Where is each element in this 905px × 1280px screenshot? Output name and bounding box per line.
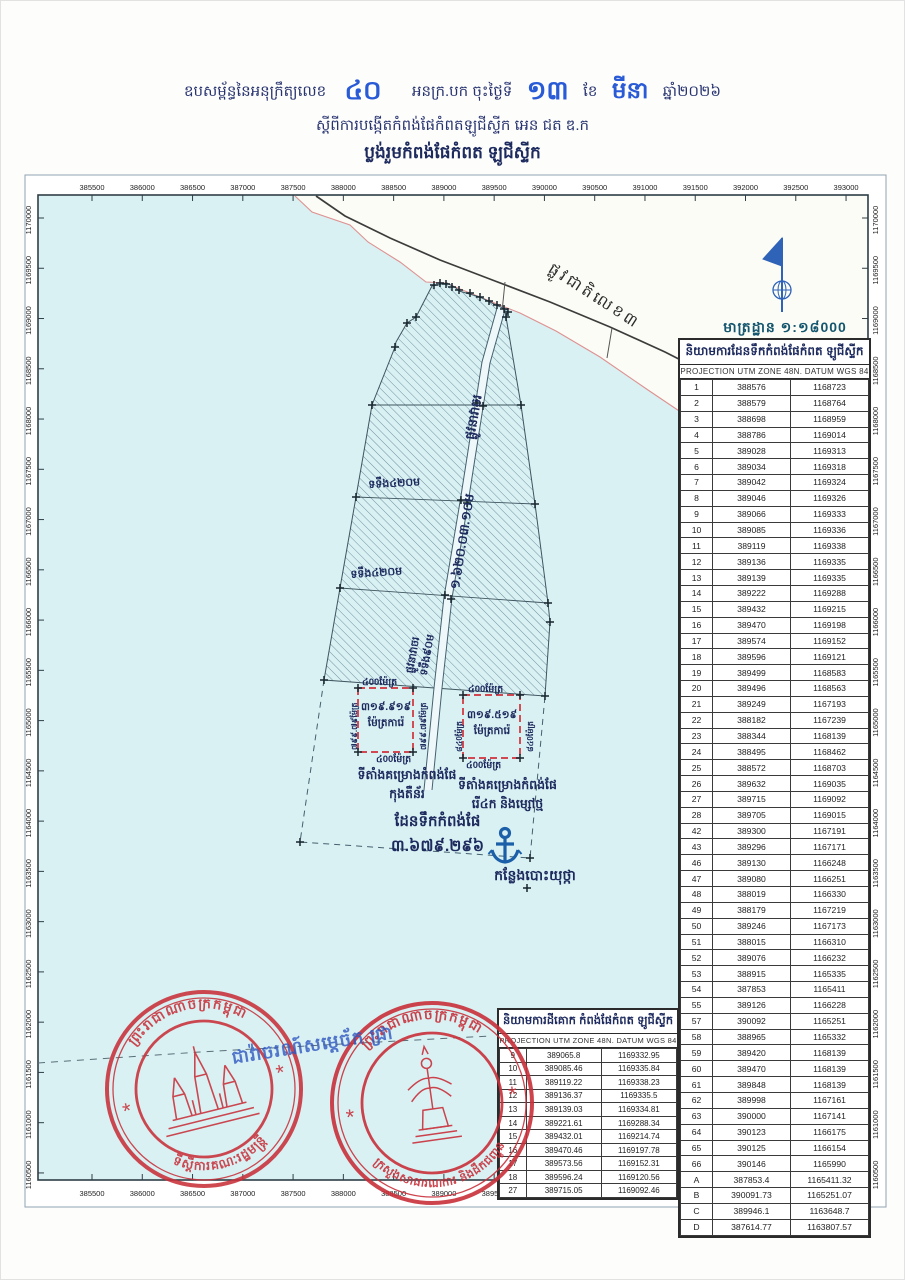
table-cell: 2: [681, 395, 713, 411]
table-cell: D: [681, 1219, 713, 1235]
axis-tick-label: 1162500: [24, 960, 33, 989]
table-cell: 389848: [712, 1077, 790, 1093]
table-row: 10389085.461169335.84: [500, 1062, 677, 1076]
axis-tick-label: 1168500: [24, 356, 33, 385]
table-cell: 388576: [712, 380, 790, 396]
table-row: 523890761166232: [681, 950, 869, 966]
table-cell: 62: [681, 1092, 713, 1108]
table-cell: 63: [681, 1108, 713, 1124]
table-row: 123891361169335: [681, 554, 869, 570]
table-row: A387853.41165411.32: [681, 1172, 869, 1188]
parcel-right-top-dim: ៤00ម៉ែត្រ: [468, 683, 503, 697]
water-area-value: ៣.៦៧៩.២៩៦: [355, 834, 520, 860]
axis-tick-label: 1164000: [24, 809, 33, 838]
table-row: 13389139.031169334.81: [500, 1103, 677, 1117]
table-cell: 389632: [712, 776, 790, 792]
axis-tick-label: 1163000: [871, 909, 880, 938]
table-cell: 1168764: [790, 395, 868, 411]
table-cell: 1165332: [790, 1029, 868, 1045]
axis-tick-label: 387000: [230, 183, 255, 192]
table-row: 27389715.051169092.46: [500, 1184, 677, 1198]
table-row: 593894201168139: [681, 1045, 869, 1061]
table-row: 33886981168959: [681, 411, 869, 427]
parcel-right-caption-1: ទីតាំងគម្រោងកំពង់ផែ: [420, 776, 595, 795]
axis-tick-label: 388000: [331, 1189, 356, 1198]
table-cell: 1169152: [790, 633, 868, 649]
table-cell: 1: [681, 380, 713, 396]
axis-tick-label: 387500: [281, 183, 306, 192]
table-cell: 1169015: [790, 807, 868, 823]
table-cell: 5: [681, 443, 713, 459]
axis-tick-label: 391500: [683, 183, 708, 192]
table-cell: 1167141: [790, 1108, 868, 1124]
axis-tick-label: 1166000: [871, 608, 880, 637]
axis-tick-label: 1161000: [871, 1110, 880, 1139]
table-cell: 52: [681, 950, 713, 966]
table-cell: 389432: [712, 601, 790, 617]
axis-tick-label: 1164500: [871, 759, 880, 788]
table-cell: 1166154: [790, 1140, 868, 1156]
table-cell: 1169152.31: [601, 1157, 676, 1171]
table-cell: 389085: [712, 522, 790, 538]
table-cell: 389080: [712, 871, 790, 887]
table-cell: 390125: [712, 1140, 790, 1156]
table-row: 533889151165335: [681, 966, 869, 982]
table-cell: 1169014: [790, 427, 868, 443]
table-cell: 1169332.95: [601, 1049, 676, 1063]
table-row: 433892961167171: [681, 839, 869, 855]
axis-tick-label: 1166000: [24, 608, 33, 637]
table-row: 513880151166310: [681, 934, 869, 950]
table-row: 493881791167219: [681, 902, 869, 918]
table-cell: 389028: [712, 443, 790, 459]
table-cell: 1168139: [790, 1077, 868, 1093]
axis-tick-label: 388500: [381, 183, 406, 192]
table-cell: 27: [681, 791, 713, 807]
table-cell: 54: [681, 982, 713, 998]
parcel-left-area: ៣១៩.៩១៩: [360, 700, 412, 716]
axis-tick-label: 387500: [281, 1189, 306, 1198]
table-cell: 58: [681, 1029, 713, 1045]
table-cell: 14: [681, 585, 713, 601]
table-cell: 20: [681, 681, 713, 697]
table-row: 543878531165411: [681, 982, 869, 998]
table-cell: 390000: [712, 1108, 790, 1124]
table-cell: 1169214.74: [601, 1130, 676, 1144]
axis-tick-label: 1166500: [871, 557, 880, 586]
table-cell: 66: [681, 1156, 713, 1172]
table-cell: 50: [681, 918, 713, 934]
table-cell: 389139.03: [526, 1103, 601, 1117]
table-cell: 1168959: [790, 411, 868, 427]
table-cell: 388182: [712, 712, 790, 728]
table-row: 633900001167141: [681, 1108, 869, 1124]
parcel-left-bottom-dim: ៤00ម៉ែត្រ: [376, 753, 411, 767]
table-row: 83890461169326: [681, 490, 869, 506]
table-cell: 389573.56: [526, 1157, 601, 1171]
table-row: 243884951168462: [681, 744, 869, 760]
axis-tick-label: 1161500: [871, 1060, 880, 1089]
table-cell: 389136: [712, 554, 790, 570]
parcel-right-side-dim-2: ៨៤0ម៉ែត្រ: [525, 721, 537, 752]
table-cell: 24: [681, 744, 713, 760]
axis-tick-label: 1165000: [871, 708, 880, 737]
table-row: 14389221.611169288.34: [500, 1116, 677, 1130]
table-cell: 389998: [712, 1092, 790, 1108]
table-cell: 42: [681, 823, 713, 839]
table-cell: 1166330: [790, 887, 868, 903]
parcel-right-unit: ម៉ែត្រការ៉េ: [465, 724, 519, 740]
table-cell: 389119: [712, 538, 790, 554]
table-cell: 390123: [712, 1124, 790, 1140]
table-cell: 1166310: [790, 934, 868, 950]
table-row: 503892461167173: [681, 918, 869, 934]
table-cell: 1169333: [790, 506, 868, 522]
axis-tick-label: 1167000: [871, 507, 880, 536]
table-row: 17389573.561169152.31: [500, 1157, 677, 1171]
table-cell: 51: [681, 934, 713, 950]
table-cell: 388698: [712, 411, 790, 427]
table-cell: 22: [681, 712, 713, 728]
axis-tick-label: 390000: [532, 183, 557, 192]
table-row: 253885721168703: [681, 760, 869, 776]
table-row: 473890801166251: [681, 871, 869, 887]
table-cell: 388965: [712, 1029, 790, 1045]
table-cell: 1169198: [790, 617, 868, 633]
axis-tick-label: 1162000: [871, 1010, 880, 1039]
table-row: 193894991168583: [681, 665, 869, 681]
table-row: 643901231166175: [681, 1124, 869, 1140]
axis-tick-label: 1160500: [871, 1161, 880, 1190]
table-cell: 1167173: [790, 918, 868, 934]
axis-tick-label: 1170000: [871, 206, 880, 235]
axis-tick-label: 1162000: [24, 1010, 33, 1039]
axis-tick-label: 1167500: [871, 457, 880, 486]
scale-label: មាត្រដ្ឋាន ១:១៨000: [695, 318, 875, 339]
axis-tick-label: 1168000: [871, 407, 880, 436]
table-cell: 1165251.07: [790, 1188, 868, 1204]
axis-tick-label: 388000: [331, 183, 356, 192]
table-row: 103890851169336: [681, 522, 869, 538]
water-table-grid: 1388576116872323885791168764338869811689…: [680, 379, 869, 1236]
table-cell: 4: [681, 427, 713, 443]
table-cell: 12: [681, 554, 713, 570]
axis-tick-label: 389500: [482, 183, 507, 192]
table-cell: 15: [681, 601, 713, 617]
table-row: 12389136.371169335.5: [500, 1089, 677, 1103]
table-cell: 1169338.23: [601, 1076, 676, 1090]
table-row: 263896321169035: [681, 776, 869, 792]
table-cell: 1169288: [790, 585, 868, 601]
table-cell: 388179: [712, 902, 790, 918]
table-cell: 388579: [712, 395, 790, 411]
parcel-left-side-dim-2: ៧៩៩.៧៩ម៉ែត្រ: [418, 703, 430, 750]
axis-tick-label: 389000: [431, 1189, 456, 1198]
table-row: C389946.11163648.7: [681, 1203, 869, 1219]
table-row: 133891391169335: [681, 570, 869, 586]
table-cell: 9: [681, 506, 713, 522]
table-cell: 389034: [712, 459, 790, 475]
water-area-label: ដែនទឹកកំពង់ផែ: [355, 810, 520, 834]
table-cell: 1169324: [790, 475, 868, 491]
table-cell: 1165411: [790, 982, 868, 998]
table-cell: 389946.1: [712, 1203, 790, 1219]
axis-tick-label: 387000: [230, 1189, 255, 1198]
table-row: 63890341169318: [681, 459, 869, 475]
axis-tick-label: 1161000: [24, 1110, 33, 1139]
axis-tick-label: 1163500: [24, 859, 33, 888]
table-cell: 1167193: [790, 696, 868, 712]
axis-tick-label: 1170000: [24, 206, 33, 235]
table-cell: 18: [500, 1170, 527, 1184]
table-cell: 1169338: [790, 538, 868, 554]
water-coordinates-table: និយាមការដែនទឹកកំពង់ផែកំពត ឡូជីស្ទីក PROJ…: [678, 338, 871, 1238]
axis-tick-label: 391000: [632, 183, 657, 192]
table-cell: 1168139: [790, 1061, 868, 1077]
axis-tick-label: 393000: [834, 183, 859, 192]
table-cell: 1168139: [790, 1045, 868, 1061]
table-cell: 389249: [712, 696, 790, 712]
table-cell: 1167219: [790, 902, 868, 918]
table-cell: 60: [681, 1061, 713, 1077]
table-cell: 1166232: [790, 950, 868, 966]
parcel-right-bottom-dim: ៤00ម៉ែត្រ: [466, 759, 501, 773]
table-cell: 1168703: [790, 760, 868, 776]
table-cell: 11: [500, 1076, 527, 1090]
table-row: 613898481168139: [681, 1077, 869, 1093]
table-cell: 388019: [712, 887, 790, 903]
table-cell: 387614.77: [712, 1219, 790, 1235]
parcel-right-area: ៣១៩.៥១៩: [465, 708, 519, 724]
axis-tick-label: 1169000: [24, 306, 33, 335]
table-cell: 16: [681, 617, 713, 633]
table-row: 653901251166154: [681, 1140, 869, 1156]
table-cell: 12: [500, 1089, 527, 1103]
axis-tick-label: 1161500: [24, 1060, 33, 1089]
table-cell: 388015: [712, 934, 790, 950]
axis-tick-label: 1168000: [24, 407, 33, 436]
axis-tick-label: 1167000: [24, 507, 33, 536]
table-cell: 10: [500, 1062, 527, 1076]
table-cell: 15: [500, 1130, 527, 1144]
table-cell: 1166248: [790, 855, 868, 871]
table-row: 213892491167193: [681, 696, 869, 712]
parcel-left-top-dim: ៤00ម៉ែត្រ: [362, 676, 397, 690]
table-cell: 3: [681, 411, 713, 427]
table-cell: 18: [681, 649, 713, 665]
scanned-document-page: ឧបសម្ព័ន្ធនៃអនុក្រឹត្យលេខ ៤០ អនក្រ.បក ចុ…: [0, 0, 905, 1280]
table-cell: 1169335: [790, 570, 868, 586]
table-cell: 26: [681, 776, 713, 792]
table-cell: 1165411.32: [790, 1172, 868, 1188]
table-cell: C: [681, 1203, 713, 1219]
table-cell: 1169121: [790, 649, 868, 665]
table-cell: A: [681, 1172, 713, 1188]
table-cell: 1167161: [790, 1092, 868, 1108]
table-cell: 17: [500, 1157, 527, 1171]
table-cell: 390092: [712, 1013, 790, 1029]
table-cell: 389715.05: [526, 1184, 601, 1198]
table-cell: 10: [681, 522, 713, 538]
table-cell: 57: [681, 1013, 713, 1029]
axis-tick-label: 1162500: [871, 960, 880, 989]
axis-tick-label: 1169500: [871, 256, 880, 285]
table-row: 163894701169198: [681, 617, 869, 633]
table-cell: 389130: [712, 855, 790, 871]
table-row: 553891261166228: [681, 997, 869, 1013]
table-cell: 14: [500, 1116, 527, 1130]
table-cell: 23: [681, 728, 713, 744]
axis-tick-label: 385500: [79, 183, 104, 192]
land-table-subtitle: PROJECTION UTM ZONE 48N. DATUM WGS 84: [499, 1034, 677, 1048]
table-cell: 389715: [712, 791, 790, 807]
table-cell: 388495: [712, 744, 790, 760]
table-row: 233883441168139: [681, 728, 869, 744]
table-row: 16389470.461169197.78: [500, 1143, 677, 1157]
table-cell: 1168462: [790, 744, 868, 760]
table-row: 93890661169333: [681, 506, 869, 522]
table-row: 283897051169015: [681, 807, 869, 823]
table-cell: 1169092: [790, 791, 868, 807]
axis-tick-label: 386000: [130, 1189, 155, 1198]
table-cell: 21: [681, 696, 713, 712]
table-row: 153894321169215: [681, 601, 869, 617]
width-label-1: ទទឹង៤២០ម: [368, 475, 421, 494]
axis-tick-label: 1164500: [24, 759, 33, 788]
axis-tick-label: 1165500: [24, 658, 33, 687]
axis-tick-label: 1168500: [871, 356, 880, 385]
axis-tick-label: 390500: [582, 183, 607, 192]
axis-tick-label: 1165000: [24, 708, 33, 737]
table-cell: 1165335: [790, 966, 868, 982]
table-cell: 1166228: [790, 997, 868, 1013]
table-cell: 47: [681, 871, 713, 887]
table-cell: 1169336: [790, 522, 868, 538]
axis-tick-label: 1160500: [24, 1161, 33, 1190]
table-row: D387614.771163807.57: [681, 1219, 869, 1235]
table-cell: 7: [681, 475, 713, 491]
table-cell: 1166175: [790, 1124, 868, 1140]
axis-tick-label: 1167500: [24, 457, 33, 486]
table-row: 23885791168764: [681, 395, 869, 411]
table-row: 603894701168139: [681, 1061, 869, 1077]
axis-tick-label: 1163500: [871, 859, 880, 888]
table-cell: 389085.46: [526, 1062, 601, 1076]
table-row: 15389432.011169214.74: [500, 1130, 677, 1144]
table-cell: 1168139: [790, 728, 868, 744]
axis-tick-label: 1165500: [871, 658, 880, 687]
axis-tick-label: 388500: [381, 1189, 406, 1198]
axis-tick-label: 1169500: [24, 256, 33, 285]
table-cell: 1167239: [790, 712, 868, 728]
table-cell: 6: [681, 459, 713, 475]
table-cell: 25: [681, 760, 713, 776]
table-cell: 1169313: [790, 443, 868, 459]
table-cell: 1166251: [790, 871, 868, 887]
table-row: 43887861169014: [681, 427, 869, 443]
table-row: 273897151169092: [681, 791, 869, 807]
table-cell: 1169335.5: [601, 1089, 676, 1103]
table-row: 18389596.241169120.56: [500, 1170, 677, 1184]
table-row: 663901461165990: [681, 1156, 869, 1172]
land-table-title: និយាមការដីគោក កំពង់ផែកំពត ឡូជីស្ទីក: [499, 1010, 677, 1034]
table-cell: 1168723: [790, 380, 868, 396]
axis-tick-label: 392000: [733, 183, 758, 192]
table-cell: 389420: [712, 1045, 790, 1061]
table-row: 623899981167161: [681, 1092, 869, 1108]
table-cell: 55: [681, 997, 713, 1013]
table-cell: 390146: [712, 1156, 790, 1172]
table-cell: 389066: [712, 506, 790, 522]
table-cell: 19: [681, 665, 713, 681]
table-cell: 389046: [712, 490, 790, 506]
table-cell: 389470: [712, 1061, 790, 1077]
table-cell: 389596.24: [526, 1170, 601, 1184]
table-row: 13885761168723: [681, 380, 869, 396]
table-cell: 27: [500, 1184, 527, 1198]
table-row: 223881821167239: [681, 712, 869, 728]
axis-tick-label: 386500: [180, 1189, 205, 1198]
table-cell: 389139: [712, 570, 790, 586]
table-cell: 17: [681, 633, 713, 649]
table-cell: 1167171: [790, 839, 868, 855]
table-cell: 387853.4: [712, 1172, 790, 1188]
water-table-title: និយាមការដែនទឹកកំពង់ផែកំពត ឡូជីស្ទីក: [680, 340, 869, 365]
table-cell: 64: [681, 1124, 713, 1140]
axis-tick-label: 386500: [180, 183, 205, 192]
table-cell: B: [681, 1188, 713, 1204]
table-cell: 389246: [712, 918, 790, 934]
table-row: 573900921165251: [681, 1013, 869, 1029]
table-cell: 1169092.46: [601, 1184, 676, 1198]
axis-tick-label: 389000: [431, 183, 456, 192]
table-cell: 1168583: [790, 665, 868, 681]
table-cell: 388786: [712, 427, 790, 443]
table-cell: 13: [681, 570, 713, 586]
table-cell: 389705: [712, 807, 790, 823]
table-row: 53890281169313: [681, 443, 869, 459]
table-cell: 389596: [712, 649, 790, 665]
table-cell: 46: [681, 855, 713, 871]
table-cell: 1163648.7: [790, 1203, 868, 1219]
table-cell: 389042: [712, 475, 790, 491]
table-row: 583889651165332: [681, 1029, 869, 1045]
table-cell: 1165251: [790, 1013, 868, 1029]
table-cell: 59: [681, 1045, 713, 1061]
table-row: 173895741169152: [681, 633, 869, 649]
table-cell: 13: [500, 1103, 527, 1117]
table-cell: 1165990: [790, 1156, 868, 1172]
table-cell: 1169288.34: [601, 1116, 676, 1130]
table-row: 113891191169338: [681, 538, 869, 554]
table-cell: 389470.46: [526, 1143, 601, 1157]
table-cell: 389065.8: [526, 1049, 601, 1063]
table-cell: 8: [681, 490, 713, 506]
table-row: 73890421169324: [681, 475, 869, 491]
table-cell: 388915: [712, 966, 790, 982]
table-cell: 43: [681, 839, 713, 855]
table-row: 9389065.81169332.95: [500, 1049, 677, 1063]
table-cell: 53: [681, 966, 713, 982]
table-cell: 389432.01: [526, 1130, 601, 1144]
axis-tick-label: 392500: [783, 183, 808, 192]
table-cell: 28: [681, 807, 713, 823]
table-cell: 389222: [712, 585, 790, 601]
table-cell: 1169197.78: [601, 1143, 676, 1157]
axis-tick-label: 1166500: [24, 557, 33, 586]
parcel-left-unit: ម៉ែត្រការ៉េ: [360, 716, 412, 732]
table-cell: 389300: [712, 823, 790, 839]
